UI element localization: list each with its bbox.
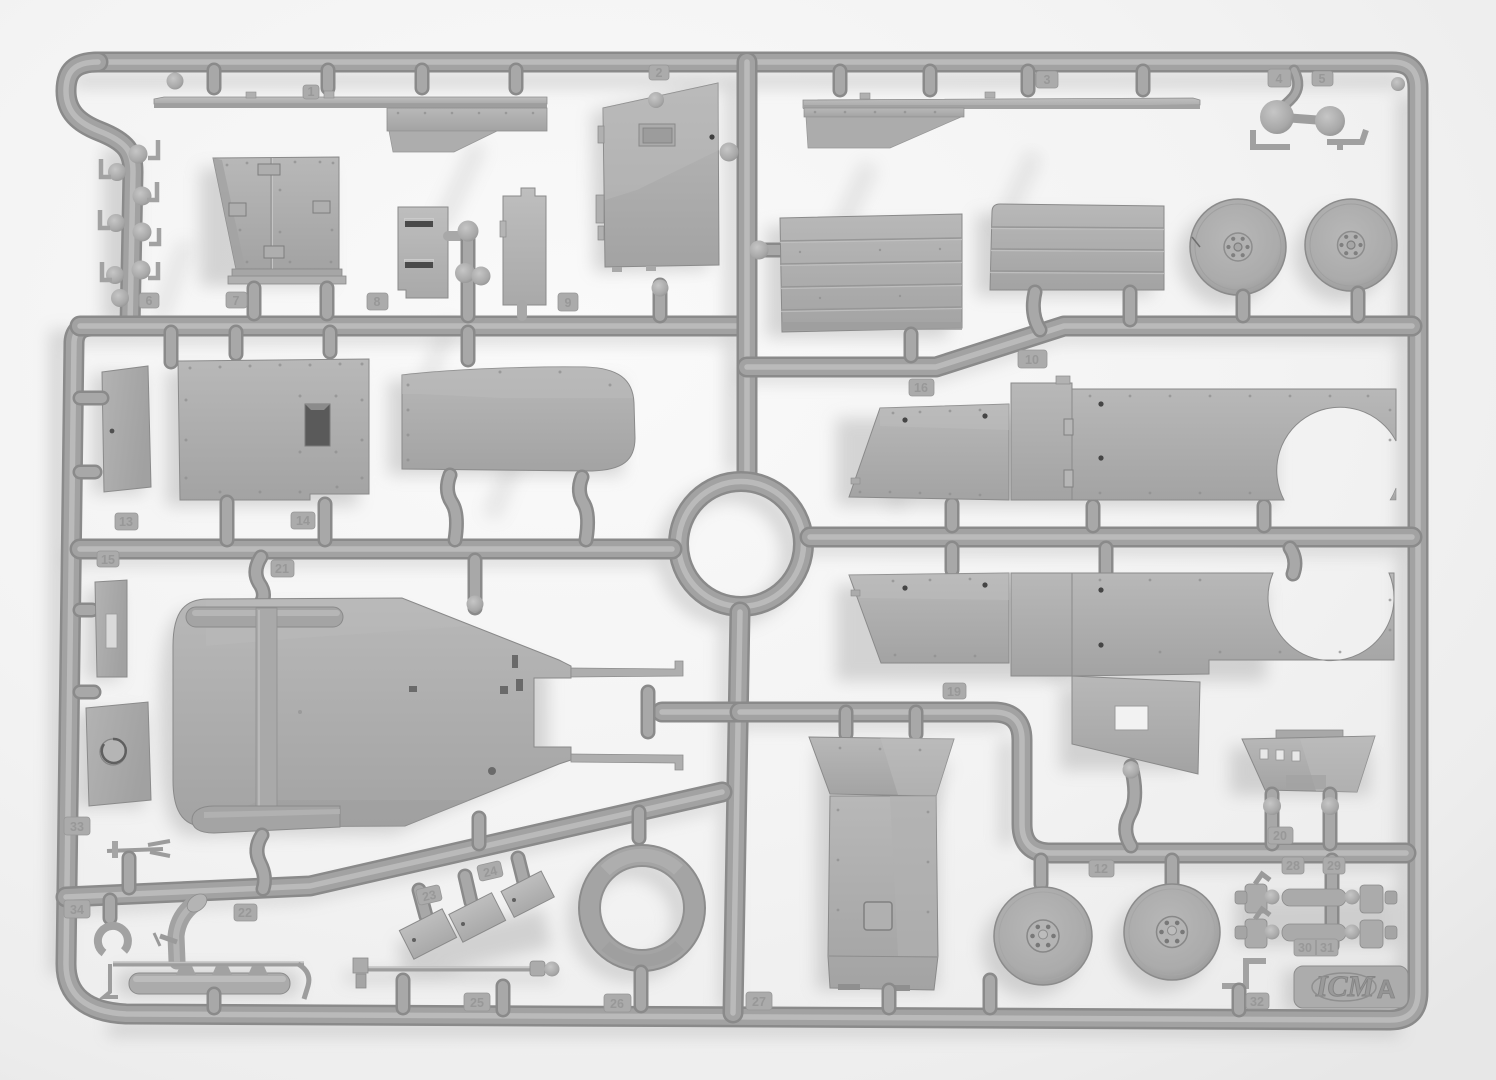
svg-text:22: 22: [238, 906, 252, 920]
svg-text:33: 33: [70, 820, 84, 834]
svg-text:31: 31: [1320, 941, 1334, 955]
svg-text:26: 26: [610, 997, 624, 1011]
svg-text:27: 27: [752, 995, 766, 1009]
svg-text:7: 7: [233, 294, 240, 308]
svg-text:34: 34: [70, 903, 84, 917]
svg-text:30: 30: [1298, 941, 1312, 955]
svg-text:25: 25: [470, 996, 484, 1010]
svg-text:A: A: [1377, 974, 1396, 1004]
svg-text:10: 10: [1025, 353, 1039, 367]
svg-text:14: 14: [296, 514, 310, 528]
svg-text:8: 8: [374, 295, 381, 309]
svg-text:1: 1: [308, 85, 315, 99]
svg-text:6: 6: [146, 294, 153, 308]
svg-text:2: 2: [656, 66, 663, 80]
svg-text:9: 9: [565, 296, 572, 310]
svg-text:5: 5: [1319, 72, 1326, 86]
svg-text:3: 3: [1044, 73, 1051, 87]
svg-text:20: 20: [1273, 829, 1287, 843]
svg-text:19: 19: [947, 685, 961, 699]
svg-text:15: 15: [101, 553, 115, 567]
svg-text:16: 16: [914, 381, 928, 395]
svg-text:32: 32: [1250, 995, 1264, 1009]
svg-text:12: 12: [1094, 862, 1108, 876]
svg-text:21: 21: [275, 562, 289, 576]
svg-text:28: 28: [1286, 859, 1300, 873]
svg-text:13: 13: [119, 515, 133, 529]
svg-text:4: 4: [1276, 72, 1283, 86]
svg-text:29: 29: [1327, 859, 1341, 873]
